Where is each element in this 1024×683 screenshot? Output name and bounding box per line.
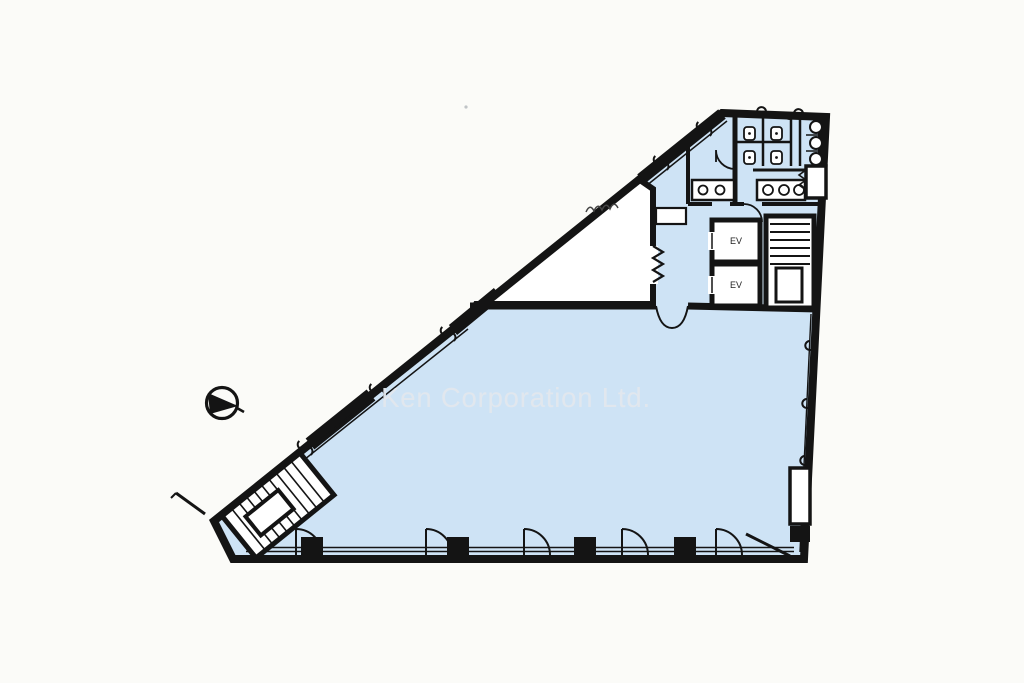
exterior-door xyxy=(171,493,205,514)
artifact-dot xyxy=(464,105,467,108)
floor-plan-svg: EV EV xyxy=(0,0,1024,683)
machine-room xyxy=(468,180,663,318)
structural-column-icon xyxy=(574,537,596,557)
round-sink-icon xyxy=(779,185,789,195)
washbasin-counter xyxy=(757,180,805,200)
counter xyxy=(656,208,686,224)
elevator-label: EV xyxy=(730,236,742,246)
watermark: Ken Corporation Ltd. xyxy=(381,382,651,413)
round-sink-icon xyxy=(699,186,708,195)
north-arrow-icon xyxy=(207,388,245,419)
elevator-label: EV xyxy=(730,280,742,290)
round-sink-icon xyxy=(794,185,804,195)
stair-landing xyxy=(776,268,802,302)
pipe-shaft xyxy=(790,468,810,524)
elevator-bank: EV EV xyxy=(708,220,760,306)
round-sink-icon xyxy=(716,186,725,195)
core-staircase xyxy=(766,216,814,308)
round-sink-icon xyxy=(763,185,773,195)
structural-column-icon xyxy=(301,537,323,557)
floor-plan-page: EV EV xyxy=(0,0,1024,683)
structural-column-icon xyxy=(674,537,696,557)
